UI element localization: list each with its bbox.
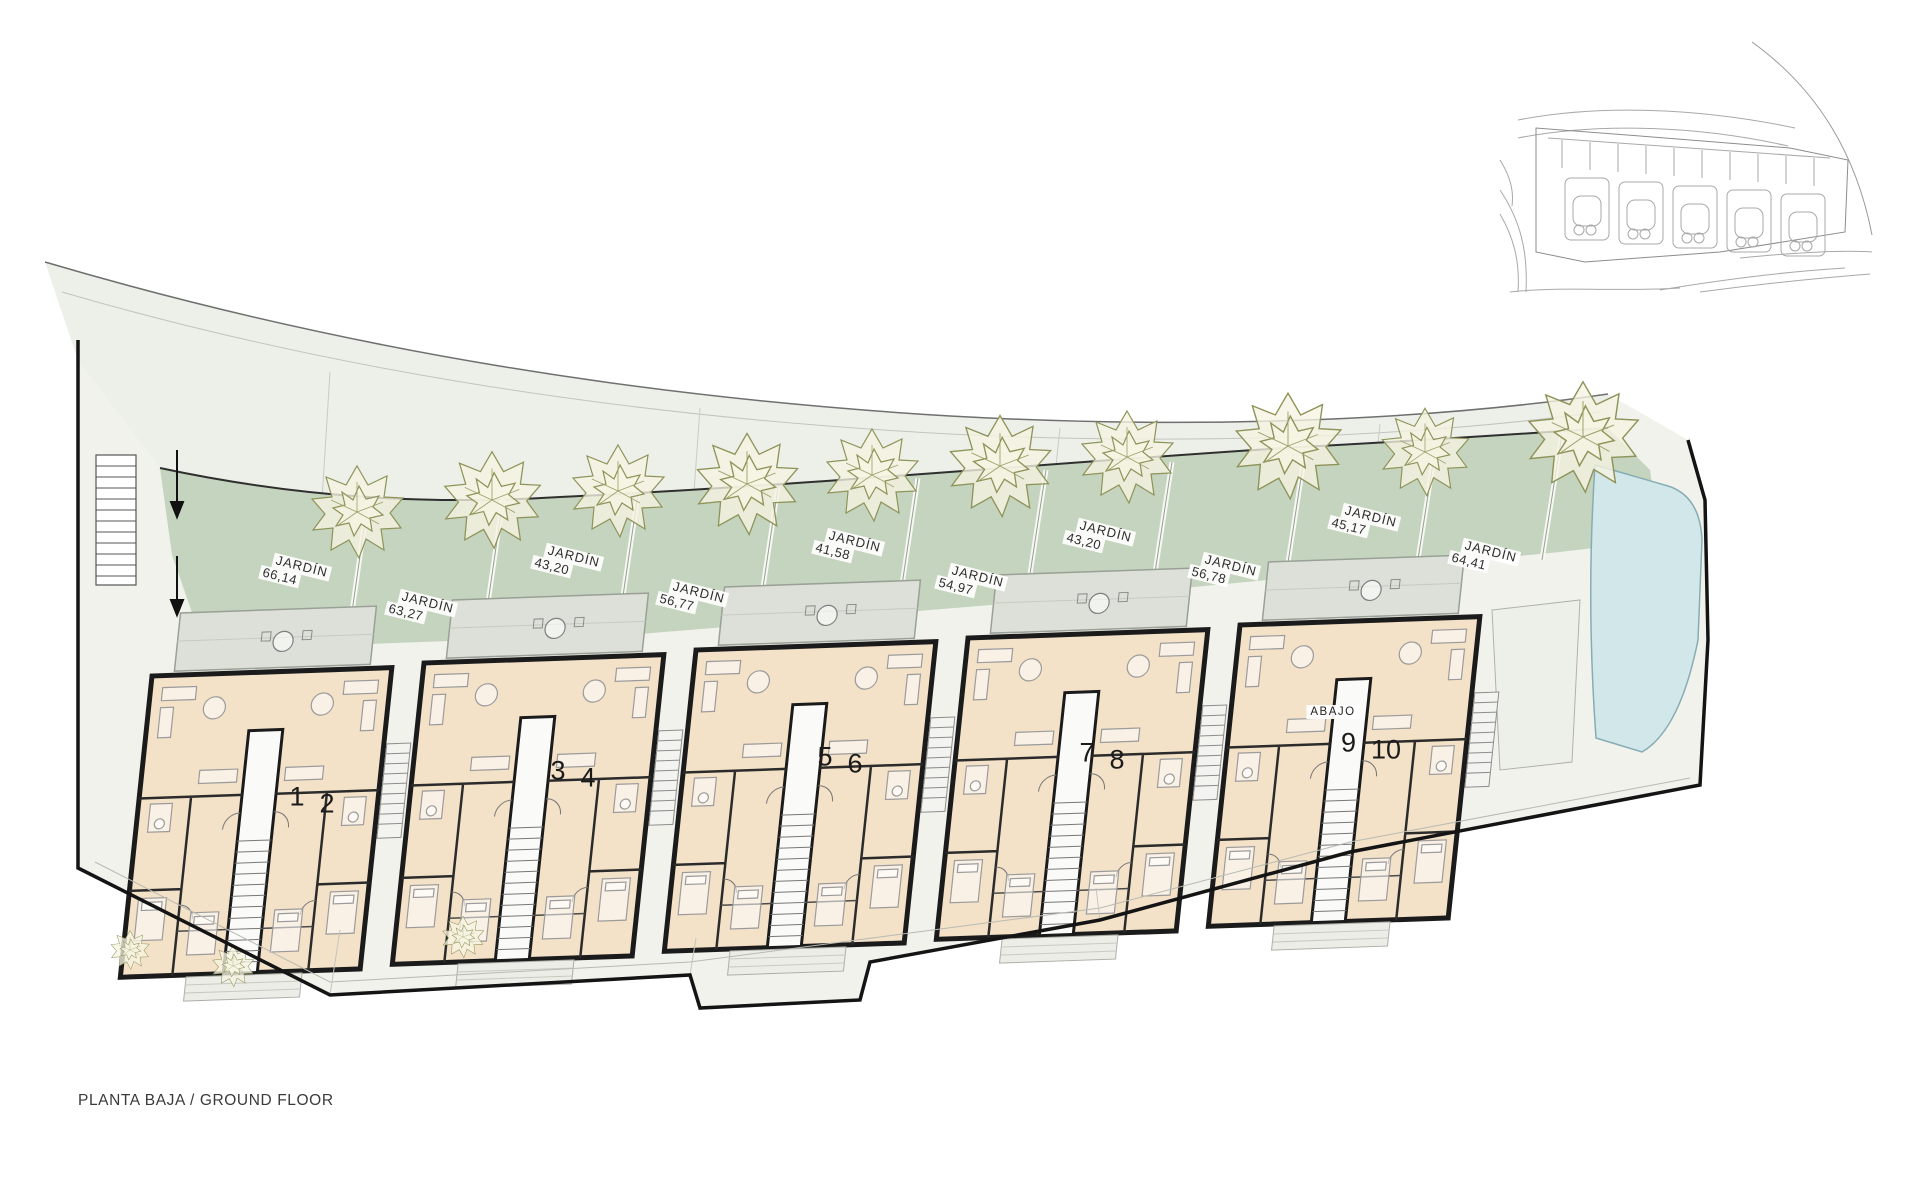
unit-number: 7 [1079,738,1094,769]
unit-number: 8 [1110,745,1125,776]
unit-numbers-5-6: 5 6 [817,742,862,773]
unit-number: 9 [1341,728,1356,759]
stairs-icon [96,455,136,585]
unit-number: 5 [817,742,832,773]
unit-number: 3 [550,756,565,787]
unit-numbers-9-10: 9 10 [1341,728,1401,759]
site-plan-drawing [0,0,1920,1193]
unit-numbers-1-2: 1 2 [289,782,334,813]
abajo-annotation: ABAJO [1306,705,1359,719]
unit-number: 4 [581,763,596,794]
unit-numbers-7-8: 7 8 [1079,738,1124,769]
pool-deck [1492,600,1580,770]
site-location-map [1500,42,1872,292]
ground-floor-site-plan: JARDÍN 66,14 JARDÍN 63,27 JARDÍN 43,20 J… [0,0,1920,1193]
unit-number: 1 [289,782,304,813]
floor-plan-title: PLANTA BAJA / GROUND FLOOR [78,1092,334,1110]
unit-number: 2 [320,789,335,820]
unit-numbers-3-4: 3 4 [550,756,595,787]
unit-number: 10 [1371,735,1401,766]
unit-number: 6 [848,749,863,780]
